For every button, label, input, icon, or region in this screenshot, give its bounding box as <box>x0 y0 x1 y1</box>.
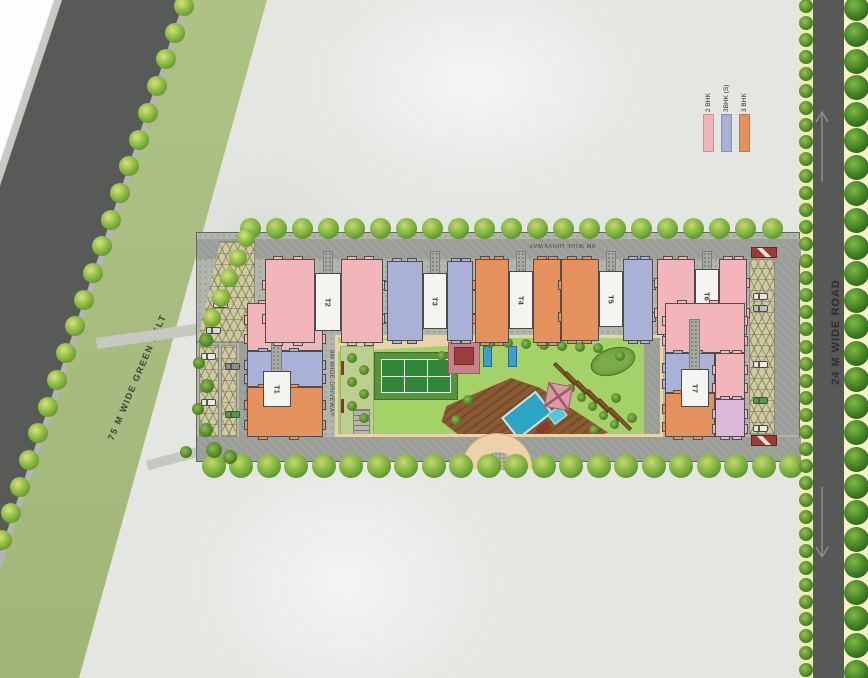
tree-icon <box>257 454 281 478</box>
tower-t2-block <box>265 259 315 343</box>
legend-label: 3BHK (S) <box>723 80 730 112</box>
shrub-icon <box>359 365 369 375</box>
tree-icon <box>844 22 868 47</box>
tree-icon <box>697 454 721 478</box>
tree-icon <box>844 367 868 392</box>
tree-icon <box>799 663 813 677</box>
tree-icon <box>799 527 813 541</box>
tree-icon <box>752 454 776 478</box>
tree-icon <box>735 218 756 239</box>
tower-t7-block <box>715 399 745 437</box>
tree-icon <box>799 442 813 456</box>
car-icon <box>753 293 768 300</box>
tree-icon <box>474 218 495 239</box>
tower-t5-entrance <box>606 251 616 273</box>
shrub-icon <box>180 446 192 458</box>
tower-t7-core: T7 <box>681 369 709 407</box>
tree-icon <box>799 561 813 575</box>
tree-icon <box>799 340 813 354</box>
tree-icon <box>501 218 522 239</box>
tree-icon <box>10 477 30 497</box>
tree-icon <box>74 290 94 310</box>
tree-icon <box>266 218 287 239</box>
tree-icon <box>101 210 121 230</box>
tennis-court-surface <box>381 359 451 393</box>
shrub-icon <box>193 357 205 369</box>
tree-icon <box>56 343 76 363</box>
tree-icon <box>138 103 158 123</box>
residential-compound: 9M WIDE DRIVEWAY 9M WIDE DRIVEWAY 9M WID… <box>196 232 800 462</box>
tree-icon <box>683 218 704 239</box>
planter-icon <box>599 411 608 420</box>
tree-icon <box>844 128 868 153</box>
shrub-icon <box>627 413 637 423</box>
play-structure <box>454 347 474 365</box>
tree-icon <box>799 646 813 660</box>
tree-icon <box>844 235 868 260</box>
tree-icon <box>396 218 417 239</box>
tree-icon <box>844 341 868 366</box>
driveway-top-label: 9M WIDE DRIVEWAY <box>477 242 647 248</box>
tower-t5-block <box>623 259 653 341</box>
tower-t1-core: T1 <box>263 371 291 407</box>
tree-icon <box>844 633 868 658</box>
tower-t4-label: T4 <box>517 296 526 305</box>
legend-swatch <box>721 114 732 152</box>
legend-item: 3BHK (S) <box>721 80 732 164</box>
legend-swatch <box>703 114 714 152</box>
tree-icon <box>844 447 868 472</box>
tree-icon <box>844 314 868 339</box>
shrub-icon <box>463 395 473 405</box>
tree-icon <box>203 309 221 327</box>
tree-icon <box>844 420 868 445</box>
tree-icon <box>844 75 868 100</box>
tree-icon <box>844 288 868 313</box>
tree-icon <box>844 580 868 605</box>
tree-icon <box>799 595 813 609</box>
shrub-icon <box>223 450 237 464</box>
tree-icon <box>799 493 813 507</box>
tree-icon <box>762 218 783 239</box>
shrub-icon <box>451 415 461 425</box>
tower-t1-label: T1 <box>273 385 282 394</box>
car-icon <box>753 425 768 432</box>
tower-t7-label: T7 <box>691 384 700 393</box>
shrub-icon <box>521 339 531 349</box>
tree-icon <box>605 218 626 239</box>
tower-t5-core: T5 <box>599 271 623 327</box>
tower-t4-entrance <box>516 251 526 273</box>
tree-icon <box>669 454 693 478</box>
tree-icon <box>799 408 813 422</box>
tower-t4-block <box>475 259 509 343</box>
tree-icon <box>799 50 813 64</box>
tree-icon <box>448 218 469 239</box>
shrub-icon <box>359 389 369 399</box>
car-icon <box>753 397 768 404</box>
tower-t3-block <box>447 261 473 341</box>
tree-icon <box>532 454 556 478</box>
tree-icon <box>799 612 813 626</box>
gazebo-icon <box>544 382 573 411</box>
tree-icon <box>237 229 255 247</box>
tree-icon <box>799 425 813 439</box>
planter-icon <box>588 402 597 411</box>
tree-icon <box>657 218 678 239</box>
car-icon <box>225 363 240 370</box>
car-icon <box>201 399 216 406</box>
planter-icon <box>577 393 586 402</box>
shrub-icon <box>347 377 357 387</box>
tree-icon <box>844 394 868 419</box>
tree-icon <box>844 474 868 499</box>
tree-icon <box>370 218 391 239</box>
bench <box>341 399 344 413</box>
tree-icon <box>312 454 336 478</box>
tree-icon <box>212 289 230 307</box>
tree-icon <box>642 454 666 478</box>
tree-icon <box>844 102 868 127</box>
entry-gate-bottom <box>751 435 777 446</box>
tree-icon <box>724 454 748 478</box>
tower-t3-block <box>387 261 423 341</box>
tree-icon <box>165 23 185 43</box>
tree-icon <box>844 49 868 74</box>
tower-t7-entrance <box>689 319 700 371</box>
tree-icon <box>579 218 600 239</box>
landscaped-garden <box>340 346 374 436</box>
tree-icon <box>614 454 638 478</box>
tower-t7-block <box>665 303 745 353</box>
shrub-icon <box>347 401 357 411</box>
tree-icon <box>83 263 103 283</box>
court-line <box>382 376 450 377</box>
shrub-icon <box>437 351 447 361</box>
shrub-icon <box>192 403 204 415</box>
tree-icon <box>129 130 149 150</box>
tree-icon <box>47 370 67 390</box>
legend-label: 3 BHK <box>741 80 748 112</box>
tree-icon <box>799 476 813 490</box>
tree-icon <box>844 606 868 631</box>
tree-icon <box>147 76 167 96</box>
entry-gate-top <box>751 247 777 258</box>
tree-icon <box>799 374 813 388</box>
tower-t5-label: T5 <box>607 295 616 304</box>
tree-icon <box>844 261 868 286</box>
tree-icon <box>229 249 247 267</box>
tree-icon <box>844 155 868 180</box>
shrub-icon <box>200 379 214 393</box>
car-icon <box>753 361 768 368</box>
tower-t3-entrance <box>430 251 440 275</box>
tree-icon <box>799 510 813 524</box>
shrub-icon <box>199 333 213 347</box>
tree-icon <box>799 544 813 558</box>
tower-t2-core: T2 <box>315 273 341 331</box>
shrub-icon <box>359 413 369 423</box>
tower-t4-core: T4 <box>509 271 533 329</box>
tree-icon <box>527 218 548 239</box>
shrub-icon <box>593 343 603 353</box>
tree-icon <box>799 629 813 643</box>
bench <box>341 361 344 375</box>
legend-item: 2 BHK <box>703 80 714 164</box>
tree-icon <box>799 391 813 405</box>
tree-icon <box>631 218 652 239</box>
parking-row-right <box>749 259 775 435</box>
tree-icon <box>844 500 868 525</box>
planter-icon <box>610 420 619 429</box>
tree-icon <box>344 218 365 239</box>
tree-icon <box>587 454 611 478</box>
tree-icon <box>844 660 868 678</box>
tower-t3-label: T3 <box>431 297 440 306</box>
tree-icon <box>559 454 583 478</box>
tree-icon <box>844 0 868 21</box>
tower-t3-core: T3 <box>423 273 447 329</box>
tree-icon <box>292 218 313 239</box>
tree-icon <box>799 459 813 473</box>
central-courtyard <box>335 335 663 437</box>
tree-icon <box>799 578 813 592</box>
legend-label: 2 BHK <box>705 80 712 112</box>
tree-icon <box>422 218 443 239</box>
tower-t5-block <box>561 259 599 341</box>
tree-icon <box>38 397 58 417</box>
tree-icon <box>844 527 868 552</box>
tree-icon <box>799 67 813 81</box>
legend-item: 3 BHK <box>739 80 750 164</box>
shrub-icon <box>347 353 357 363</box>
tree-icon <box>477 454 501 478</box>
tree-icon <box>367 454 391 478</box>
car-icon <box>225 411 240 418</box>
legend: 2 BHK3BHK (S)3 BHK <box>703 80 779 164</box>
site-plan: 75 M WIDE GREEN BELT 9M WIDE DRIVEWAY 9M… <box>0 0 868 678</box>
tree-icon <box>318 218 339 239</box>
driveway-courtyard-right <box>644 338 663 437</box>
parking-row <box>221 345 237 437</box>
water-feature <box>483 346 492 367</box>
tree-icon <box>844 553 868 578</box>
legend-swatch <box>739 114 750 152</box>
tree-icon <box>709 218 730 239</box>
tree-icon <box>220 269 238 287</box>
tower-t7-block <box>715 353 745 399</box>
tree-icon <box>799 33 813 47</box>
water-feature <box>508 346 517 367</box>
shrub-icon <box>206 442 222 458</box>
tower-t2-label: T2 <box>324 298 333 307</box>
car-icon <box>753 305 768 312</box>
shrub-icon <box>615 351 625 361</box>
tree-icon <box>799 16 813 30</box>
tree-icon <box>422 454 446 478</box>
tower-t6-entrance <box>702 251 712 271</box>
tree-icon <box>799 357 813 371</box>
tower-t4-block <box>533 259 561 343</box>
shrub-icon <box>199 423 213 437</box>
tree-icon <box>844 181 868 206</box>
shrub-icon <box>611 393 621 403</box>
play-pavilion-pad <box>448 342 480 374</box>
tree-icon <box>844 208 868 233</box>
tower-t2-entrance <box>323 251 333 275</box>
tree-icon <box>553 218 574 239</box>
shrub-icon <box>589 425 599 435</box>
tower-t2-block <box>341 259 383 343</box>
